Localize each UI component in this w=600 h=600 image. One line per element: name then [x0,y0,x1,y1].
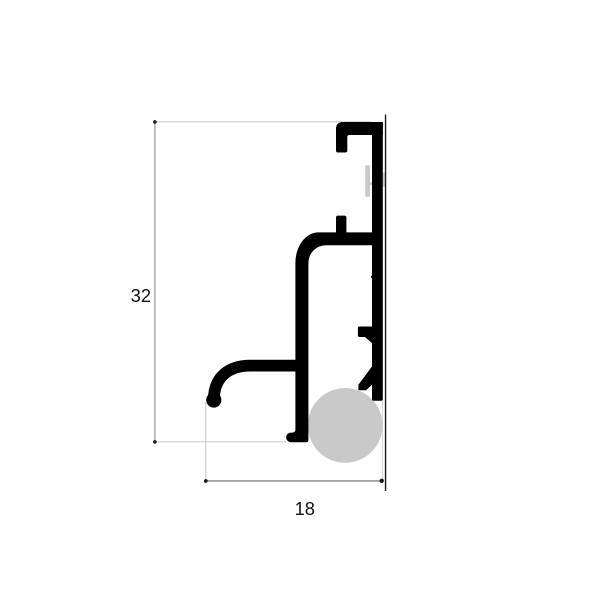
svg-text:18: 18 [295,498,315,519]
svg-text:32: 32 [131,285,151,306]
